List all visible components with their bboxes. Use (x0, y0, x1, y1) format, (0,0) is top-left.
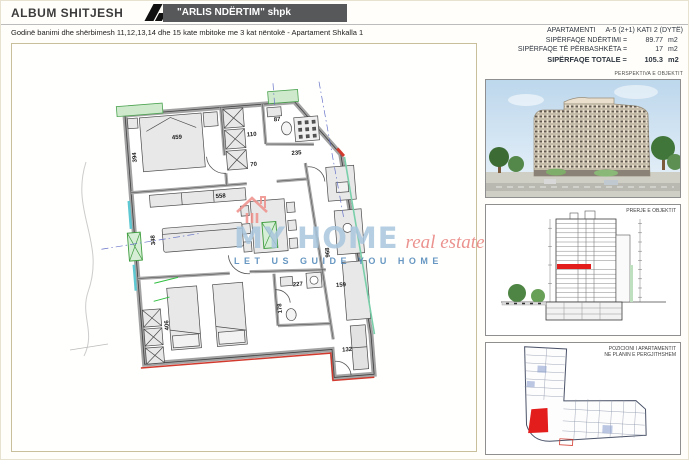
area-common-label: SIPËRFAQE TË PËRBASHKËTA = (518, 46, 627, 53)
dim-shaft: 235 (291, 150, 302, 157)
area-total-value: 105.3 (629, 55, 663, 65)
dim-bath2-depth: 178 (277, 302, 284, 313)
company-banner: "ARLIS NDËRTIM" shpk (163, 4, 347, 22)
perspective-panel (485, 79, 681, 198)
dim-bath2: 227 (293, 282, 304, 289)
building-subtitle: Godinë banimi dhe shërbimesh 11,12,13,14… (11, 28, 363, 37)
area-built-label: SIPËRFAQE NDËRTIMI = (546, 37, 627, 44)
dim-bedroom2-depth: 406 (164, 319, 171, 330)
perspective-label: PERSPEKTIVA E OBJEKTIT (461, 71, 683, 77)
apartment-position-highlight (528, 407, 549, 434)
area-built-value: 89.77 (629, 36, 663, 46)
position-label: POZICIONI I APARTAMENTIT NE PLANIN E PER… (604, 346, 676, 358)
area-common-value: 17 (629, 45, 663, 55)
page-title: ALBUM SHITJESH (11, 6, 123, 20)
floor-plan-drawing: 459 394 110 70 87 235 558 348 227 178 15… (12, 44, 478, 452)
album-page: ALBUM SHITJESH "ARLIS NDËRTIM" shpk Godi… (0, 0, 689, 460)
dim-bath1: 87 (274, 117, 282, 124)
dim-balcony: 132 (342, 347, 353, 354)
section-panel: PRERJE E OBJEKTIT (485, 204, 681, 336)
apartment-plan: 459 394 110 70 87 235 558 348 227 178 15… (90, 77, 378, 398)
highlighted-floor (557, 264, 591, 269)
floor-plan-panel: 459 394 110 70 87 235 558 348 227 178 15… (11, 43, 477, 452)
building-render (486, 80, 680, 197)
apartment-value: A-5 (2+1) KATI 2 (DYTË) (606, 27, 683, 34)
dim-closet: 110 (247, 132, 258, 139)
company-name: "ARLIS NDËRTIM" shpk (163, 4, 347, 22)
site-plan (486, 343, 680, 454)
header-divider (1, 24, 689, 25)
apartment-label: APARTAMENTI (547, 27, 596, 34)
section-label: PRERJE E OBJEKTIT (626, 208, 676, 214)
site-boundary-line (82, 162, 93, 356)
apartment-info: APARTAMENTI A-5 (2+1) KATI 2 (DYTË) SIPË… (453, 26, 683, 64)
dim-kitchen: 159 (336, 282, 347, 289)
dim-kitchen-depth: 968 (325, 247, 332, 258)
building-section (486, 205, 680, 335)
dim-bedroom1-depth: 394 (132, 151, 139, 162)
dim-living-depth: 348 (150, 234, 157, 245)
position-panel: POZICIONI I APARTAMENTIT NE PLANIN E PER… (485, 342, 681, 455)
area-total-label: SIPËRFAQE TOTALE = (547, 55, 627, 64)
dim-hall: 70 (250, 162, 258, 169)
dim-living-width: 558 (215, 193, 226, 200)
terrace-strip (268, 89, 299, 103)
dim-bed1: 459 (172, 135, 183, 142)
